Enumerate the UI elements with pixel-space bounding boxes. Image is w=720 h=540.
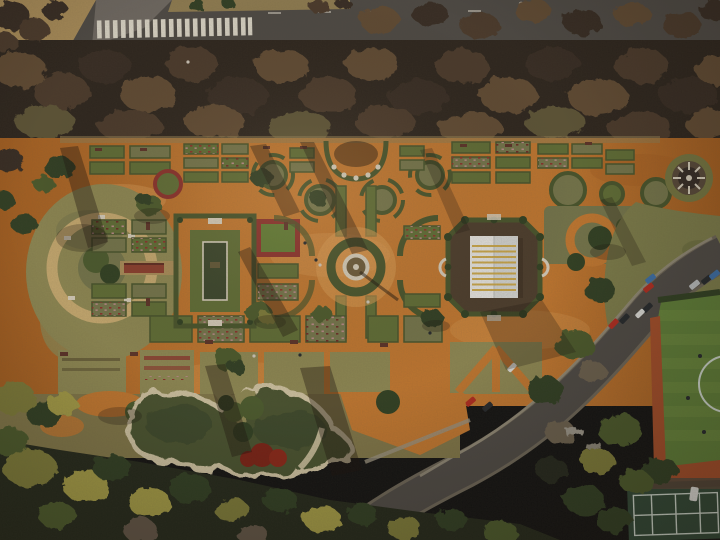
aerial-photo-canvas xyxy=(0,0,720,540)
vignette xyxy=(0,0,720,540)
aerial-photo: Aerial drone photograph of a formal rose… xyxy=(0,0,720,540)
